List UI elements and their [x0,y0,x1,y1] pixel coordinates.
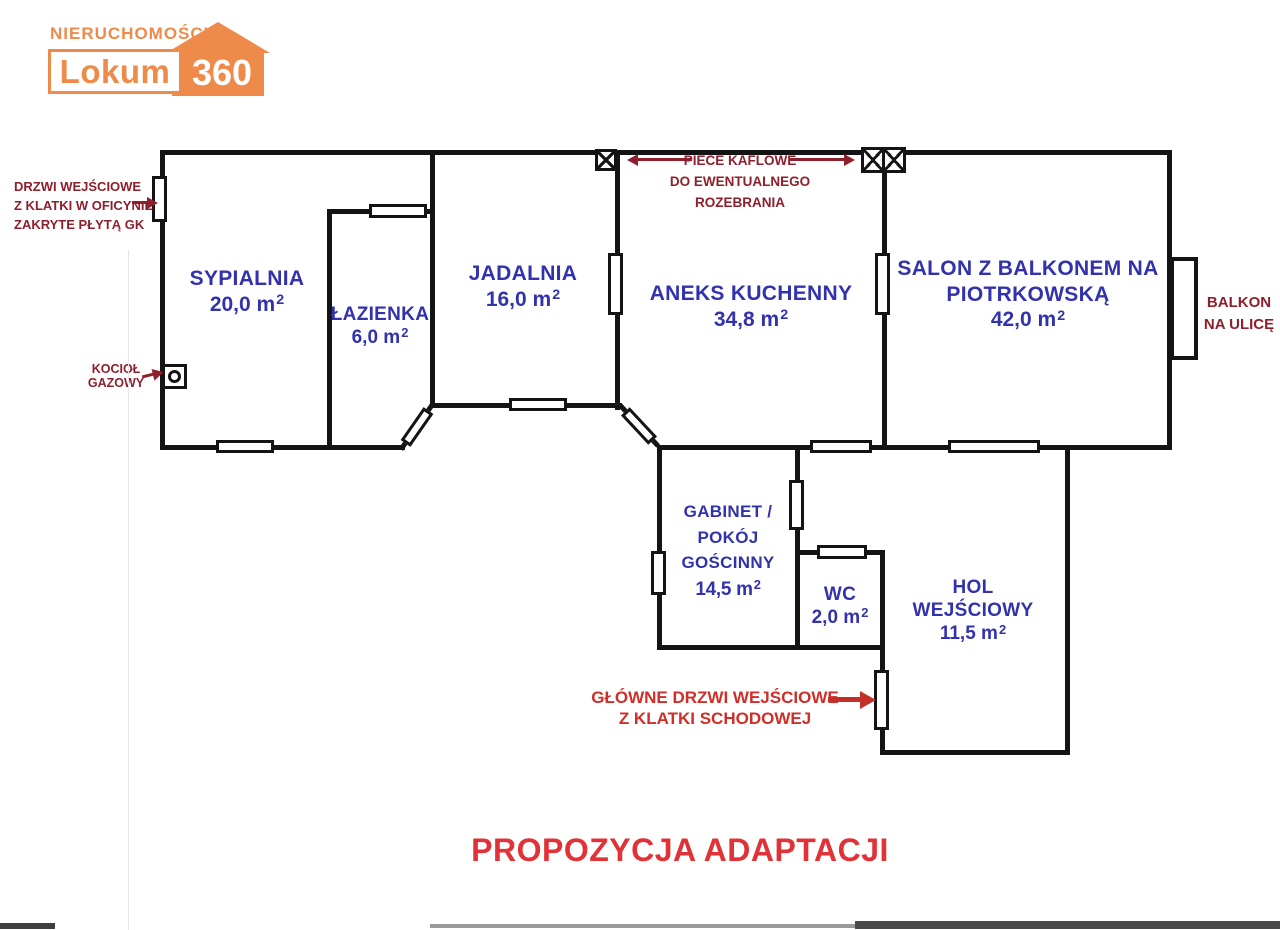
room-label-salon: SALON Z BALKONEM NA PIOTRKOWSKĄ 42,0 m2 [895,256,1161,333]
window-bedroom [216,440,274,453]
entry-door-arrow-icon [132,201,148,204]
annotation-line: GAZOWY [80,376,152,390]
tile-stove-single-icon [595,149,617,171]
scan-artifact-strip [430,924,855,928]
room-name: ŁAZIENKA [328,303,432,326]
annotation-line: BALKON [1198,292,1280,314]
room-area: 34,8 m2 [641,307,861,333]
room-name-line2: PIOTRKOWSKĄ [895,282,1161,308]
logo-brand-number: 360 [178,52,266,94]
room-name: SYPIALNIA [157,266,337,292]
annotation-line: KOCIOŁ [80,362,152,376]
room-label-hol: HOL WEJŚCIOWY 11,5 m2 [892,576,1054,646]
gas-boiler-icon [162,364,187,389]
door-main-entrance [874,670,889,730]
tile-stove-icon [595,149,617,171]
room-label-gabinet: GABINET / POKÓJ GOŚCINNY 14,5 m2 [650,499,806,604]
wall-bedroom-dining-divider [430,150,435,408]
annotation-line: NA ULICĘ [1198,314,1280,336]
tile-stove-arrow-right-icon [790,158,845,161]
room-label-aneks-kuchenny: ANEKS KUCHENNY 34,8 m2 [641,281,861,332]
logo-tagline: NIERUCHOMOŚCI [50,24,209,44]
plan-title: PROPOZYCJA ADAPTACJI [380,832,980,869]
logo-brand-text: Lokum [60,53,171,91]
window-dining-kitchen [608,253,623,315]
annotation-entry-door-covered: DRZWI WEJŚCIOWE Z KLATKI W OFICYNIE ZAKR… [14,178,164,235]
room-name: SALON Z BALKONEM NA [895,256,1161,282]
scan-artifact-strip [855,921,1280,929]
floor-plan-page: NIERUCHOMOŚCI Lokum 360 [0,0,1280,930]
annotation-line: ROZEBRANIA [640,193,840,214]
annotation-line: ZAKRYTE PŁYTĄ GK [14,216,164,235]
room-area: 20,0 m2 [157,292,337,318]
wall-bedroom-bottom [160,445,405,450]
balcony-outline [1170,257,1198,360]
wall-hall-right [1065,445,1070,755]
opening-dining-bottom [509,398,567,411]
scan-artifact-strip [0,923,55,929]
annotation-line: Z KLATKI W OFICYNIE [14,197,164,216]
room-name: JADALNIA [438,261,608,287]
door-wc [817,545,867,559]
opening-kitchen-hall [810,440,872,453]
annotation-balcony: BALKON NA ULICĘ [1198,292,1280,336]
room-label-jadalnia: JADALNIA 16,0 m2 [438,261,608,312]
scan-artifact-line [128,250,129,930]
window-kitchen-livingroom [875,253,890,315]
door-diagonal-bathroom [401,407,434,447]
tile-stove-double-icon [861,147,906,173]
wall-study-wc-bottom [657,645,885,650]
main-door-arrow-icon [828,697,862,702]
room-area: 11,5 m2 [892,622,1054,645]
room-name: HOL [892,576,1054,599]
room-name: ANEKS KUCHENNY [641,281,861,307]
door-bathroom-top [369,204,427,218]
room-area: 14,5 m2 [650,576,806,605]
gas-boiler-ring [168,370,181,383]
room-area: 42,0 m2 [895,307,1161,333]
annotation-line: GŁÓWNE DRZWI WEJŚCIOWE [560,687,870,708]
tile-stove-icon [882,147,906,173]
tile-stove-arrow-left-icon [637,158,692,161]
room-area: 16,0 m2 [438,287,608,313]
room-name-line2: POKÓJ GOŚCINNY [650,525,806,576]
annotation-line: DO EWENTUALNEGO [640,172,840,193]
room-label-lazienka: ŁAZIENKA 6,0 m2 [328,303,432,349]
room-label-sypialnia: SYPIALNIA 20,0 m2 [157,266,337,317]
annotation-line: PIECE KAFLOWE [640,151,840,172]
annotation-line: Z KLATKI SCHODOWEJ [560,708,870,729]
room-name: WC [794,583,886,606]
opening-livingroom-hall [948,440,1040,453]
logo-brand-box: Lokum [48,49,182,94]
room-name-line2: WEJŚCIOWY [892,599,1054,622]
wall-hall-bottom [880,750,1070,755]
room-name: GABINET / [650,499,806,525]
annotation-line: DRZWI WEJŚCIOWE [14,178,164,197]
annotation-main-door: GŁÓWNE DRZWI WEJŚCIOWE Z KLATKI SCHODOWE… [560,687,870,730]
room-area: 6,0 m2 [328,326,432,349]
room-label-wc: WC 2,0 m2 [794,583,886,629]
door-diagonal-kitchen [621,407,657,444]
room-area: 2,0 m2 [794,606,886,629]
